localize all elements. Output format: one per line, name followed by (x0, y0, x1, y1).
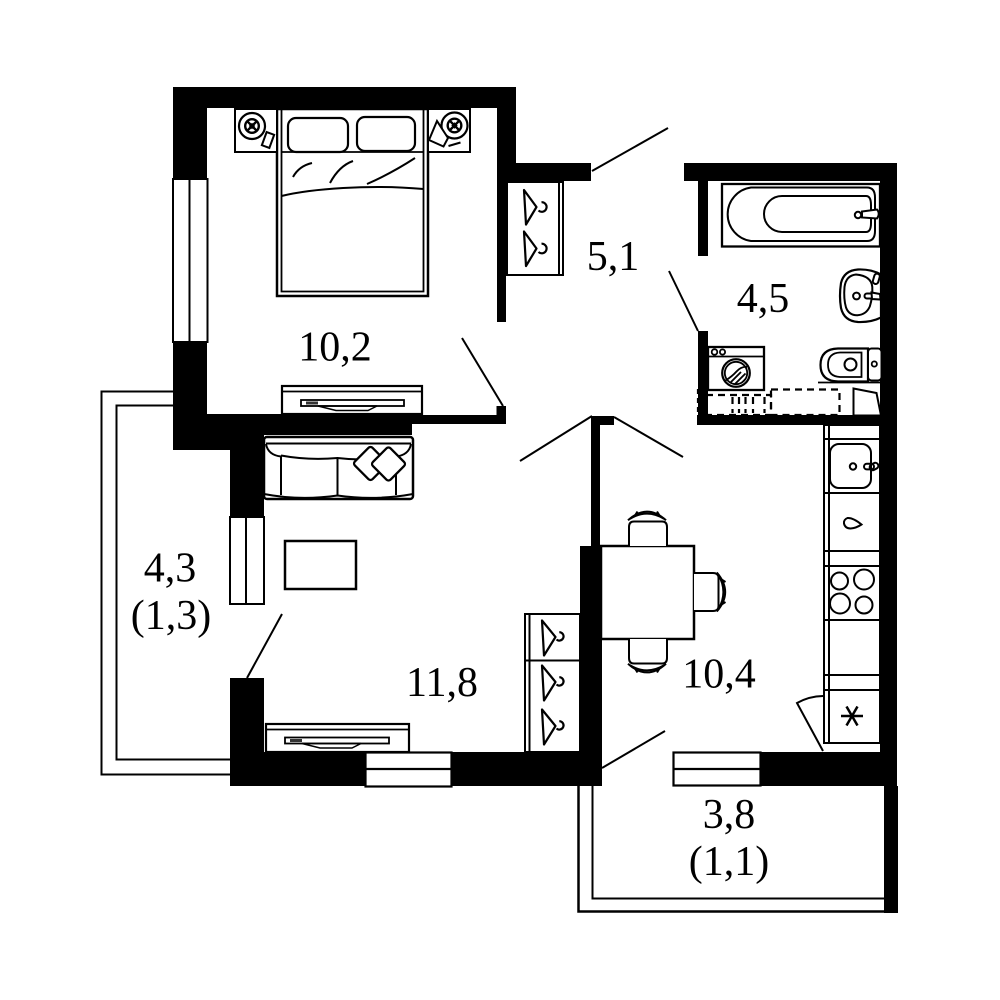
svg-text:10,2: 10,2 (298, 325, 372, 371)
svg-text:(1,3): (1,3) (131, 593, 211, 639)
svg-text:(1,1): (1,1) (689, 839, 769, 885)
svg-text:10,4: 10,4 (682, 652, 756, 698)
svg-text:3,8: 3,8 (703, 792, 756, 838)
svg-text:4,3: 4,3 (144, 546, 197, 592)
svg-text:11,8: 11,8 (406, 660, 478, 706)
svg-text:5,1: 5,1 (587, 234, 640, 280)
svg-text:4,5: 4,5 (737, 276, 790, 322)
